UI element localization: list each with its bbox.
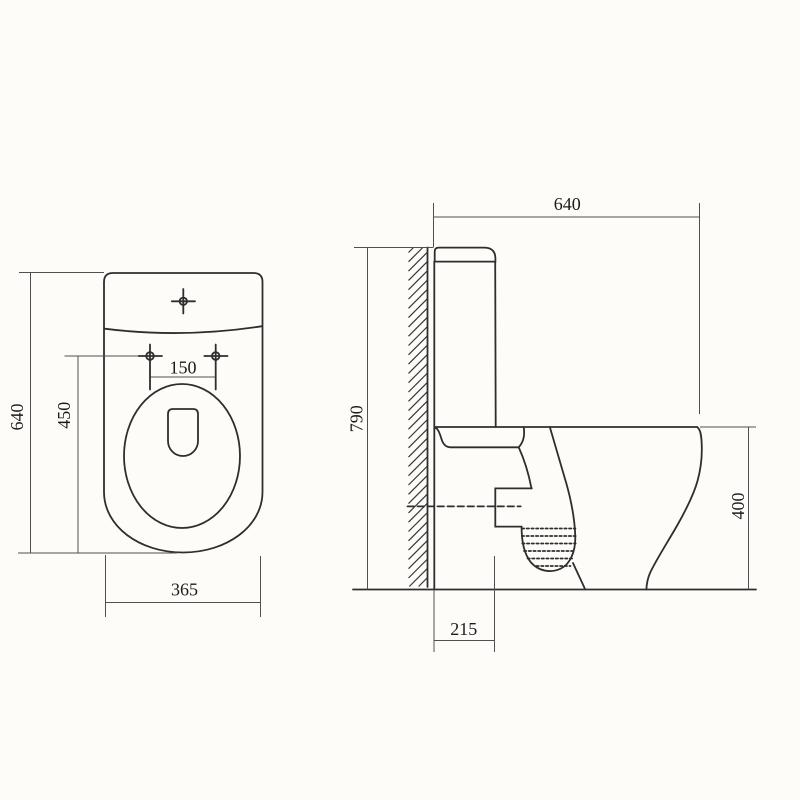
svg-text:640: 640 xyxy=(554,194,581,214)
svg-text:640: 640 xyxy=(7,404,27,431)
svg-text:450: 450 xyxy=(54,402,74,429)
svg-text:215: 215 xyxy=(450,619,477,639)
svg-text:400: 400 xyxy=(728,493,748,520)
svg-text:365: 365 xyxy=(171,580,198,600)
svg-text:790: 790 xyxy=(346,405,366,432)
svg-text:150: 150 xyxy=(170,358,197,378)
